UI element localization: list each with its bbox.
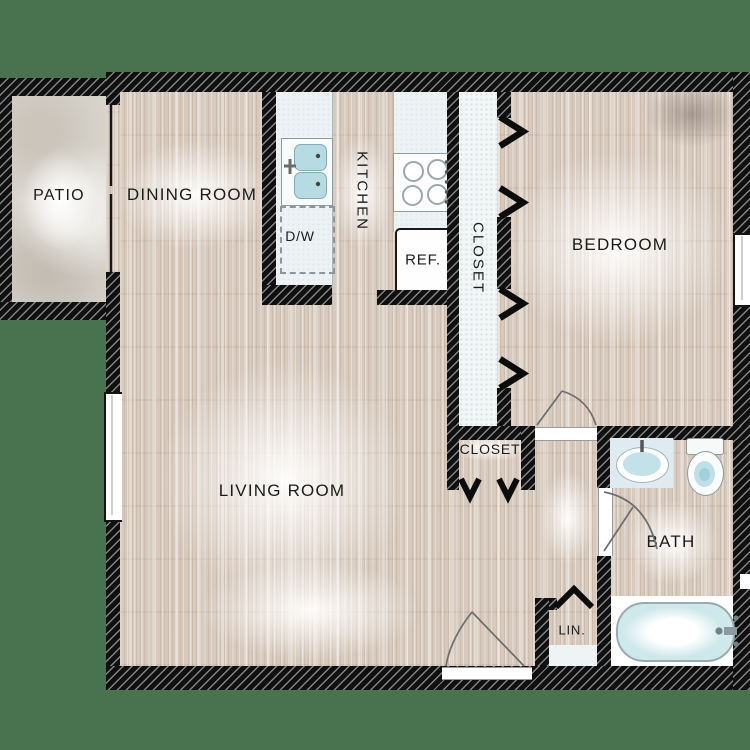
linen-shelf [549, 645, 597, 666]
kitchen-sink-basin [294, 172, 327, 199]
wall [262, 285, 332, 305]
room-label-linen: LIN. [558, 623, 585, 638]
room-label-bath: BATH [647, 532, 696, 552]
wall [106, 666, 750, 690]
wall [262, 92, 276, 285]
wall [497, 217, 511, 289]
wall [497, 92, 511, 118]
wall [0, 302, 120, 320]
patio-door-slot [106, 105, 120, 272]
floor-plan: PATIO DINING ROOM KITCHEN CLOSET BEDROOM… [0, 0, 750, 750]
room-label-dining: DINING ROOM [127, 185, 257, 205]
room-label-kitchen: KITCHEN [354, 151, 371, 231]
window [733, 233, 750, 307]
wall [106, 72, 750, 92]
door-opening [535, 427, 597, 441]
room-label-entry-closet: CLOSET [460, 441, 521, 457]
wall [549, 598, 557, 610]
stove-burner [427, 184, 448, 205]
stove-burner [403, 161, 424, 182]
bathtub [616, 602, 735, 662]
stove-burner [427, 159, 448, 180]
stove-burner [402, 185, 423, 206]
appliance-label-refrigerator: REF. [405, 252, 441, 269]
wall [497, 388, 511, 426]
door-opening [442, 667, 532, 680]
room-label-living: LIVING ROOM [219, 481, 346, 501]
wall [0, 78, 12, 320]
window [104, 392, 122, 522]
wall [106, 272, 120, 392]
room-label-patio: PATIO [33, 187, 85, 205]
bathroom-sink-bowl [623, 452, 661, 476]
wall [521, 426, 535, 490]
wall [597, 556, 611, 666]
wall [106, 72, 120, 105]
door-opening [598, 488, 613, 556]
wall [535, 598, 549, 666]
kitchen-sink-basin [294, 144, 327, 171]
appliance-label-dishwasher: D/W [285, 228, 315, 244]
wall [733, 72, 750, 690]
toilet-bowl-water [699, 468, 710, 481]
window [740, 574, 750, 589]
wall [0, 78, 106, 96]
room-label-hall-closet: CLOSET [470, 222, 487, 294]
wall [597, 426, 611, 488]
wall [106, 518, 120, 666]
room-label-bedroom: BEDROOM [572, 235, 668, 255]
